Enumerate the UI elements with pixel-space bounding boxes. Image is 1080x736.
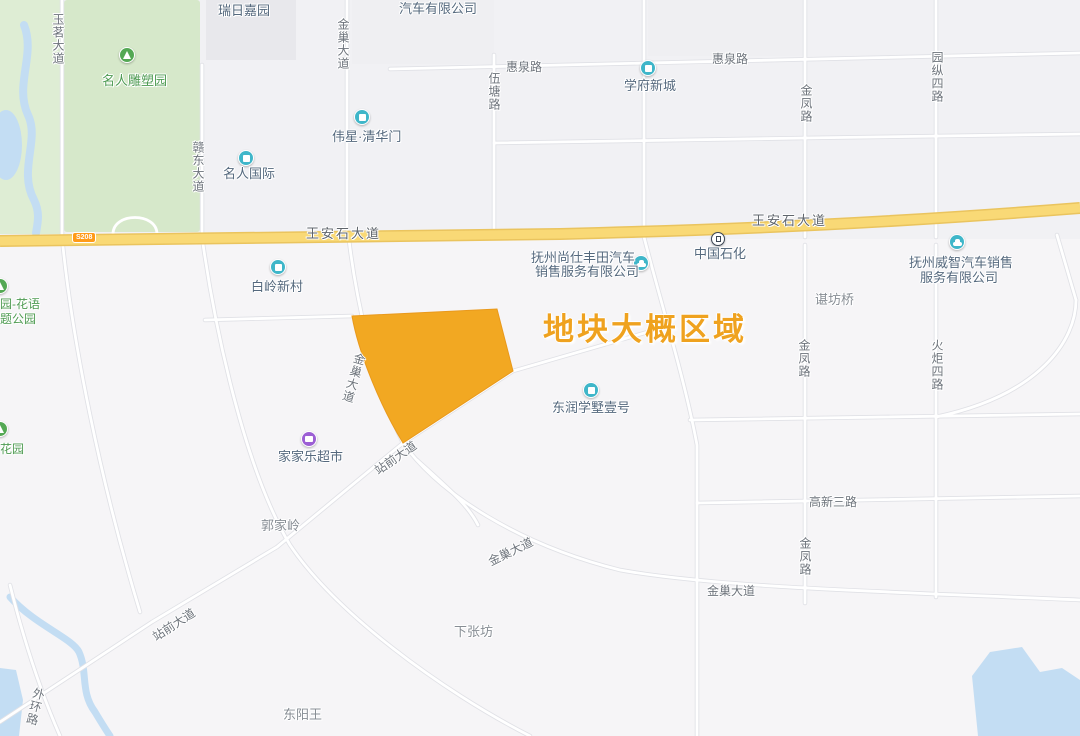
building-icon[interactable] — [640, 60, 656, 76]
water-lake-southeast — [972, 647, 1080, 736]
place-label-dongyangwang: 东阳王 — [283, 708, 322, 722]
shop-glyph — [305, 436, 313, 442]
plot-area-polygon — [352, 309, 513, 443]
place-label-xiazhangfang: 下张坊 — [454, 625, 493, 639]
route-badge-s208: S208 — [72, 232, 96, 243]
tree-glyph — [0, 282, 4, 290]
poi-label-fuzhou-toyota-line2[interactable]: 销售服务有限公司 — [535, 265, 639, 279]
poi-label-jiajiale-supermarket[interactable]: 家家乐超市 — [278, 450, 343, 464]
park-area-sculpture — [64, 0, 200, 232]
building-glyph — [588, 387, 595, 394]
water-lake-southwest — [0, 668, 23, 736]
building-icon[interactable] — [354, 109, 370, 125]
building-glyph — [645, 65, 652, 72]
poi-label-dongrun-xueshu[interactable]: 东润学墅壹号 — [552, 401, 630, 415]
building-icon[interactable] — [270, 259, 286, 275]
poi-label-fuzhou-toyota-line1[interactable]: 抚州尚仕丰田汽车 — [531, 251, 635, 265]
gas-station-icon[interactable] — [711, 232, 725, 246]
building-glyph — [275, 264, 282, 271]
poi-label-huayu-park-line1[interactable]: 园-花语 — [0, 297, 40, 311]
road-label-gaoxin-3rd-road: 高新三路 — [809, 495, 857, 509]
road-label-jinfeng-road-north: 金凤路 — [799, 84, 812, 123]
building-icon[interactable] — [583, 382, 599, 398]
car-glyph — [953, 242, 962, 246]
poi-label-weixing-qinghuamen[interactable]: 伟星·清华门 — [332, 130, 401, 144]
place-label-chenfang-bridge: 谌坊桥 — [815, 293, 854, 307]
poi-label-fuzhou-weizhi-line2[interactable]: 服务有限公司 — [920, 271, 998, 285]
poi-label-huayuan[interactable]: 花园 — [0, 442, 24, 456]
road-label-wutang-road: 伍塘路 — [487, 72, 500, 111]
poi-label-bailing-xincun[interactable]: 白岭新村 — [251, 280, 303, 294]
poi-label-car-company-partial[interactable]: 汽车有限公司 — [399, 2, 477, 16]
poi-label-mingren-international[interactable]: 名人国际 — [223, 167, 275, 181]
map-canvas[interactable]: 玉茗大道 赣东大道 金巢大道 伍塘路 惠泉路 惠泉路 金凤路 园纵四路 王安石大… — [0, 0, 1080, 736]
tree-glyph — [123, 51, 131, 59]
supermarket-icon[interactable] — [301, 431, 317, 447]
building-icon[interactable] — [238, 150, 254, 166]
road-label-huiquan-road-east: 惠泉路 — [712, 52, 748, 66]
tree-glyph — [0, 425, 4, 433]
road-label-huoju-4th-road: 火炬四路 — [930, 339, 943, 391]
road-label-jinchao-avenue-east: 金巢大道 — [707, 584, 755, 598]
building-glyph — [359, 114, 366, 121]
road-label-yuming-avenue: 玉茗大道 — [51, 13, 64, 65]
road-label-jinchao-avenue-north: 金巢大道 — [336, 18, 349, 70]
road-label-yuanzong-4th-road: 园纵四路 — [930, 51, 943, 103]
poi-label-mingren-sculpture-park[interactable]: 名人雕塑园 — [102, 74, 167, 88]
road-label-huiquan-road-west: 惠泉路 — [506, 60, 542, 74]
road-label-jinfeng-road-south: 金凤路 — [798, 537, 811, 576]
building-glyph — [243, 155, 250, 162]
poi-label-ruiri-jiayuan[interactable]: 瑞日嘉园 — [218, 4, 270, 18]
tree-icon[interactable] — [119, 47, 135, 63]
road-label-wanganshi-avenue-west: 王安石大道 — [306, 227, 381, 241]
road-label-gandong-avenue: 赣东大道 — [191, 141, 204, 193]
plot-area-annotation: 地块大概区域 — [543, 323, 747, 337]
place-label-guojialing: 郭家岭 — [261, 519, 300, 533]
poi-label-xuefu-xincheng[interactable]: 学府新城 — [624, 79, 676, 93]
road-label-jinfeng-road-mid: 金凤路 — [797, 339, 810, 378]
car-dealer-icon[interactable] — [949, 234, 965, 250]
pump-glyph — [716, 236, 721, 242]
poi-label-fuzhou-weizhi-line1[interactable]: 抚州威智汽车销售 — [909, 256, 1013, 270]
city-block — [648, 0, 803, 56]
poi-label-sinopec[interactable]: 中国石化 — [694, 247, 746, 261]
poi-label-huayu-park-line2[interactable]: 题公园 — [0, 312, 36, 326]
road-label-wanganshi-avenue-east: 王安石大道 — [752, 214, 827, 228]
